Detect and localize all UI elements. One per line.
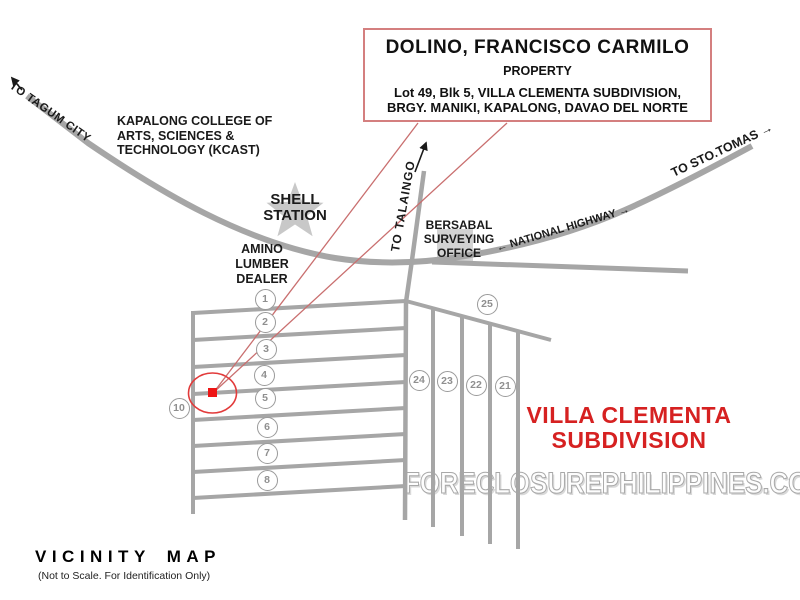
lot-marker-23: 23 — [437, 371, 458, 392]
vicinity-map-title: VICINITY MAP — [35, 547, 221, 567]
property-marker — [208, 388, 217, 397]
property-info-box: DOLINO, FRANCISCO CARMILO PROPERTY Lot 4… — [363, 28, 712, 122]
kcast-line1: KAPALONG COLLEGE OF — [117, 114, 272, 129]
left-grid-street — [193, 301, 406, 313]
left-grid-street — [193, 355, 406, 367]
property-address-line1: Lot 49, Blk 5, VILLA CLEMENTA SUBDIVISIO… — [365, 85, 710, 100]
road-network — [27, 96, 752, 549]
vicinity-map-image: FORECLOSUREPHILIPPINES.COM — [0, 0, 800, 600]
amino-line1: AMINO — [212, 242, 312, 257]
bersabal-line1: BERSABAL — [408, 218, 510, 232]
subdivision-line2: SUBDIVISION — [518, 428, 740, 453]
shell-line2: STATION — [245, 208, 345, 224]
lot-marker-4: 4 — [254, 365, 275, 386]
lot-marker-8: 8 — [257, 470, 278, 491]
lot-marker-1: 1 — [255, 289, 276, 310]
lot-marker-21: 21 — [495, 376, 516, 397]
property-type-label: PROPERTY — [365, 64, 710, 78]
kcast-line3: TECHNOLOGY (KCAST) — [117, 143, 272, 158]
shell-line1: SHELL — [245, 192, 345, 208]
lot-marker-22: 22 — [466, 375, 487, 396]
left-grid-street — [193, 434, 406, 446]
subdivision-line1: VILLA CLEMENTA — [518, 403, 740, 428]
vicinity-map-subtitle: (Not to Scale. For Identification Only) — [38, 570, 210, 582]
amino-line3: DEALER — [212, 272, 312, 287]
lot-marker-5: 5 — [255, 388, 276, 409]
lot-marker-2: 2 — [255, 312, 276, 333]
amino-line2: LUMBER — [212, 257, 312, 272]
property-owner-name: DOLINO, FRANCISCO CARMILO — [365, 37, 710, 59]
kcast-line2: ARTS, SCIENCES & — [117, 129, 272, 144]
villa-clementa-subdivision-label: VILLA CLEMENTA SUBDIVISION — [518, 403, 740, 453]
property-address-line2: BRGY. MANIKI, KAPALONG, DAVAO DEL NORTE — [365, 100, 710, 115]
left-grid-street — [193, 486, 406, 498]
lot-marker-3: 3 — [256, 339, 277, 360]
left-grid-street — [193, 382, 406, 394]
lot-marker-24: 24 — [409, 370, 430, 391]
lot-marker-6: 6 — [257, 417, 278, 438]
amino-lumber-dealer-label: AMINO LUMBER DEALER — [212, 242, 312, 287]
lot-marker-25: 25 — [477, 294, 498, 315]
left-grid-street — [193, 328, 406, 340]
left-grid-street — [193, 460, 406, 472]
shell-station-label: SHELL STATION — [245, 192, 345, 224]
branch-road — [432, 262, 688, 271]
property-address: Lot 49, Blk 5, VILLA CLEMENTA SUBDIVISIO… — [365, 85, 710, 115]
lot-marker-7: 7 — [257, 443, 278, 464]
lot-marker-10: 10 — [169, 398, 190, 419]
kcast-college-label: KAPALONG COLLEGE OF ARTS, SCIENCES & TEC… — [117, 114, 272, 158]
